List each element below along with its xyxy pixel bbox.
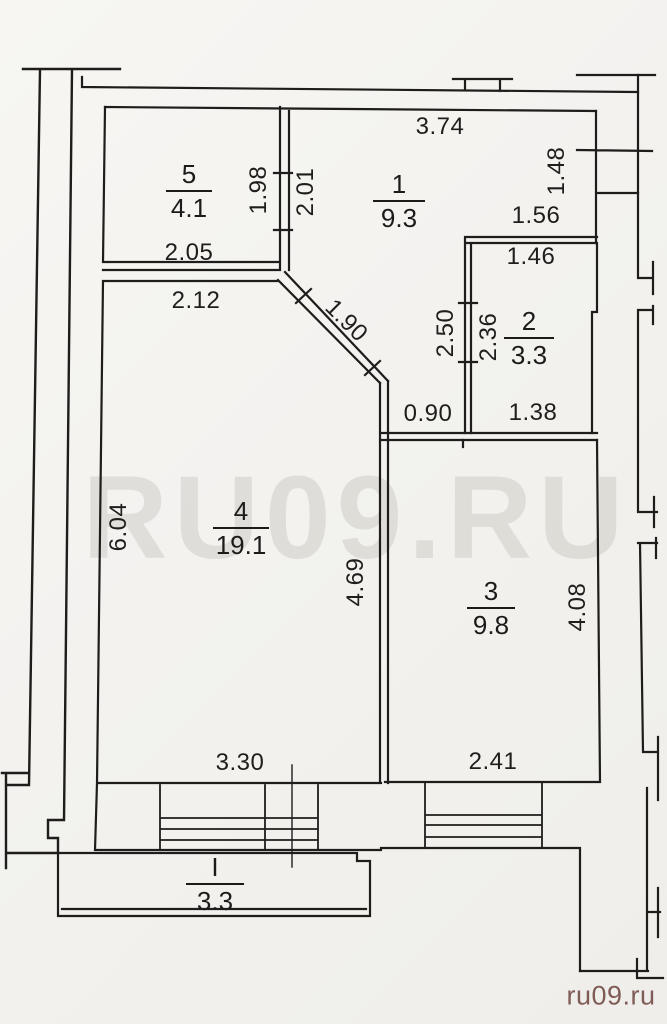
room-1-number: 1	[373, 171, 425, 197]
room-label-1: 1 9.3	[373, 171, 425, 231]
dim-2-01: 2.01	[292, 168, 320, 217]
wall-top	[82, 77, 638, 111]
wall-right-exterior	[580, 75, 663, 978]
room-5-rule	[166, 190, 212, 192]
room-2-rule	[504, 337, 554, 339]
dim-2-36: 2.36	[475, 313, 503, 362]
room-3-area: 9.8	[467, 612, 515, 638]
balcony-number: I	[186, 854, 244, 880]
dim-2-05: 2.05	[165, 239, 214, 267]
balcony-area: 3.3	[186, 888, 244, 914]
room-3-window	[425, 783, 542, 848]
dim-1-98: 1.98	[245, 166, 273, 215]
dim-4-08: 4.08	[564, 583, 592, 632]
dim-3-74: 3.74	[416, 113, 465, 141]
dim-1-38: 1.38	[509, 399, 558, 427]
room-4-number: 4	[213, 498, 269, 524]
dim-1-46: 1.46	[507, 243, 556, 271]
dim-1-56: 1.56	[512, 202, 561, 230]
room-3-number: 3	[467, 578, 515, 604]
floorplan-page: RU09.RU 3.74 1.48 1.98 2.01 1.56 1.46 2.…	[0, 0, 667, 1024]
room-label-balcony: I 3.3	[186, 854, 244, 914]
room-5-number: 5	[166, 161, 212, 187]
window-top-right	[577, 75, 655, 243]
room-3-rule	[467, 607, 515, 609]
dim-4-69: 4.69	[342, 558, 370, 607]
dim-6-04: 6.04	[105, 503, 133, 552]
room-label-4: 4 19.1	[213, 498, 269, 558]
room-4-area: 19.1	[213, 532, 269, 558]
room-label-5: 5 4.1	[166, 161, 212, 221]
dim-0-90: 0.90	[404, 400, 453, 428]
wall-left-edge	[2, 69, 120, 868]
room-label-3: 3 9.8	[467, 578, 515, 638]
room-1-rule	[373, 200, 425, 202]
dim-2-12: 2.12	[172, 287, 221, 315]
room-3-walls	[381, 440, 600, 971]
balcony-rule	[186, 883, 244, 885]
dim-1-48: 1.48	[543, 147, 571, 196]
dim-3-30: 3.30	[216, 749, 265, 777]
room-2-area: 3.3	[504, 342, 554, 368]
dim-2-41: 2.41	[469, 748, 518, 776]
dim-2-50: 2.50	[432, 309, 460, 358]
room-5-area: 4.1	[166, 195, 212, 221]
room-4-rule	[213, 527, 269, 529]
room-4-window	[160, 785, 318, 850]
site-credit: ru09.ru	[566, 981, 655, 1012]
room-label-2: 2 3.3	[504, 308, 554, 368]
room-2-number: 2	[504, 308, 554, 334]
room-1-area: 9.3	[373, 205, 425, 231]
